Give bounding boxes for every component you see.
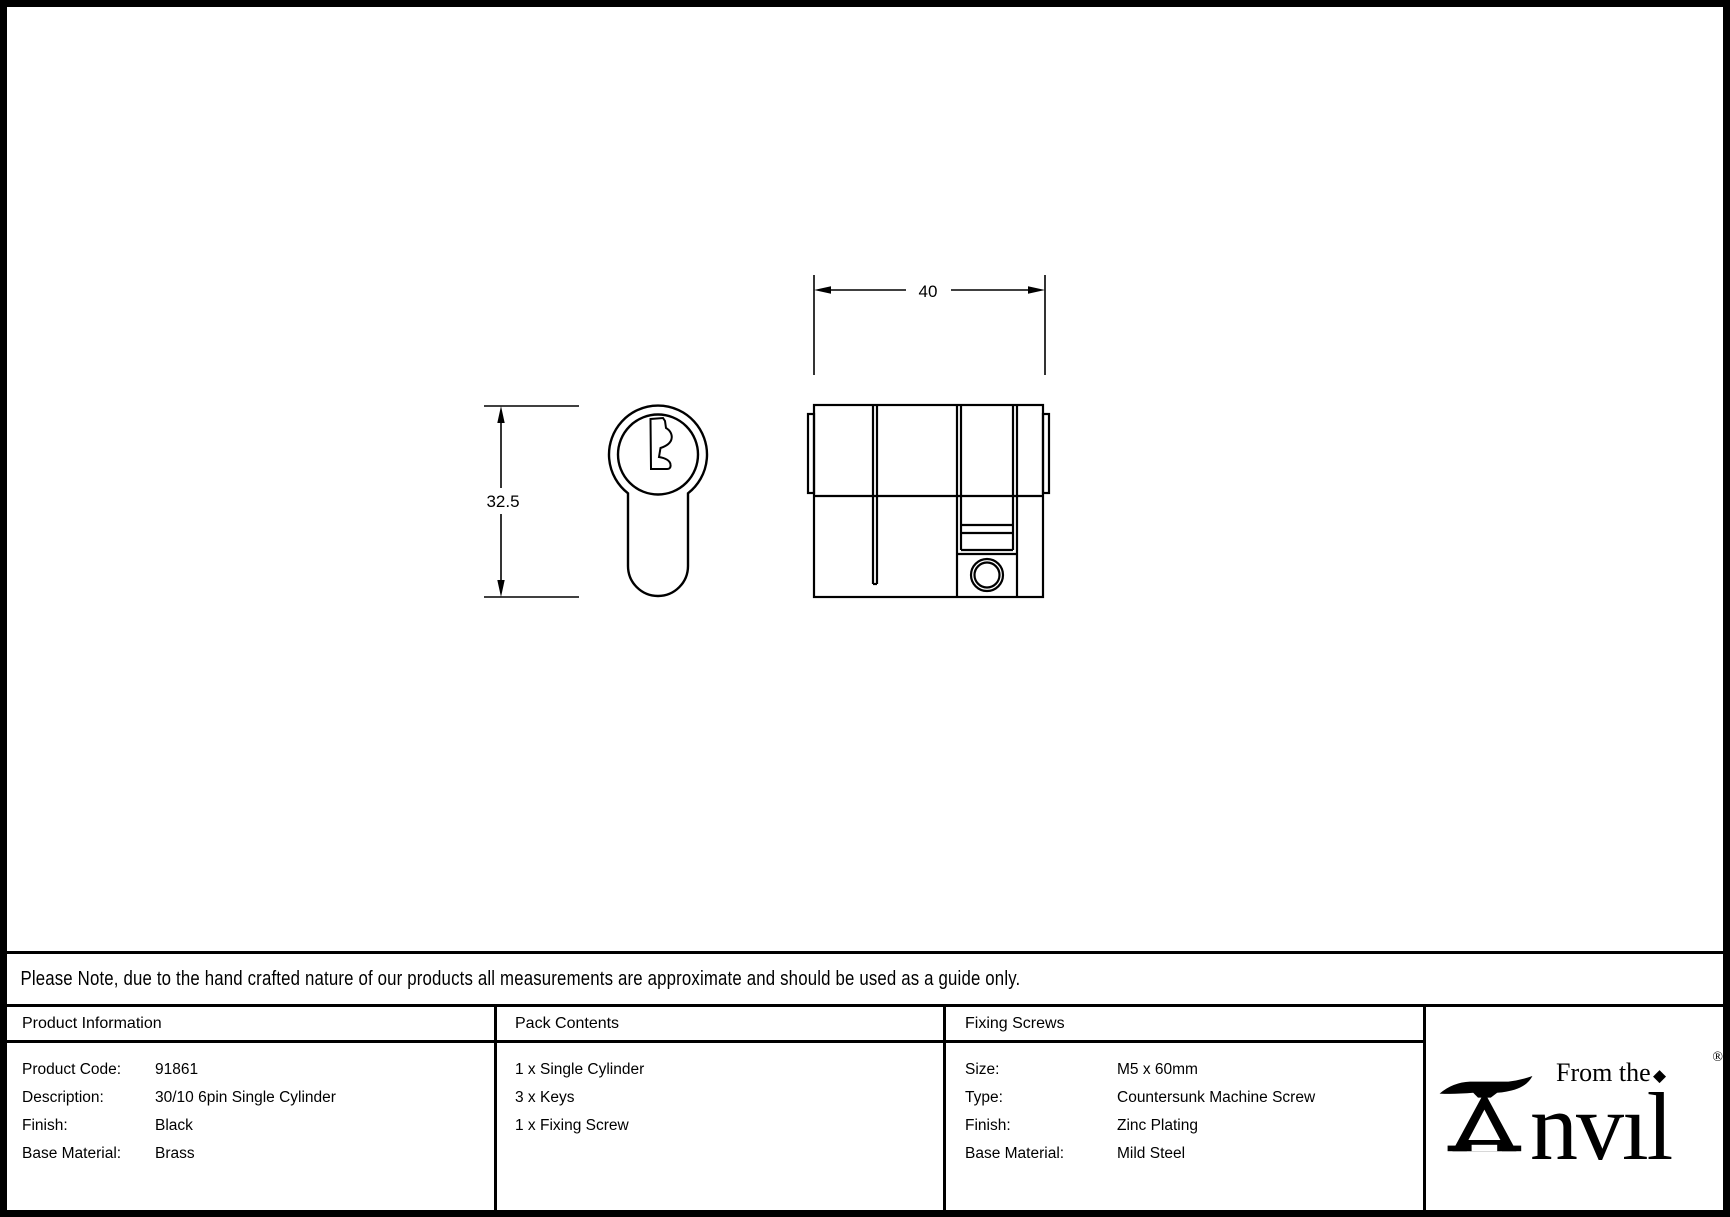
brand-name-text: nvıl — [1530, 1086, 1671, 1168]
finish-value: Black — [155, 1117, 193, 1134]
product-code-value: 91861 — [155, 1061, 198, 1078]
list-item: 3 x Keys — [515, 1084, 644, 1112]
dimension-width: 40 — [814, 275, 1045, 375]
product-information-header: Product Information — [22, 1007, 162, 1040]
list-item: 1 x Single Cylinder — [515, 1056, 644, 1084]
dimension-height: 32.5 — [484, 406, 579, 597]
product-info-table: Product Information Pack Contents Fixing… — [7, 1007, 1723, 1210]
fixing-screws-body: Size:M5 x 60mm Type:Countersunk Machine … — [965, 1056, 1315, 1168]
table-row: Finish:Zinc Plating — [965, 1112, 1315, 1140]
arrow-up-icon — [497, 406, 504, 423]
front-cap-lip — [808, 414, 814, 493]
description-value: 30/10 6pin Single Cylinder — [155, 1089, 336, 1106]
pack-contents-body: 1 x Single Cylinder 3 x Keys 1 x Fixing … — [515, 1056, 644, 1140]
product-information-body: Product Code:91861 Description:30/10 6pi… — [22, 1056, 336, 1168]
screw-finish-value: Zinc Plating — [1117, 1117, 1198, 1134]
table-row: Product Code:91861 — [22, 1056, 336, 1084]
rear-cap-lip — [1043, 414, 1049, 493]
column-divider — [494, 1007, 497, 1210]
list-item: 1 x Fixing Screw — [515, 1112, 644, 1140]
registered-mark: ® — [1712, 1050, 1723, 1066]
fixing-screw-hole — [971, 559, 1003, 591]
description-label: Description: — [22, 1084, 155, 1112]
column-divider — [943, 1007, 946, 1210]
screw-material-label: Base Material: — [965, 1140, 1117, 1168]
base-material-label: Base Material: — [22, 1140, 155, 1168]
cylinder-front-view — [609, 406, 707, 596]
table-row: Base Material:Brass — [22, 1140, 336, 1168]
anvil-icon — [1438, 1066, 1534, 1166]
screw-size-value: M5 x 60mm — [1117, 1061, 1198, 1078]
diamond-icon: ◆ — [1653, 1066, 1666, 1086]
brand-logo-cell: nvıl From the ◆ ® — [1426, 1007, 1723, 1210]
screw-type-label: Type: — [965, 1084, 1117, 1112]
header-divider-line — [7, 1040, 1423, 1043]
arrow-left-icon — [814, 286, 831, 293]
fixing-screws-header: Fixing Screws — [965, 1007, 1065, 1040]
technical-drawing: 32.5 40 — [7, 7, 1730, 951]
brand-prefix-text: From the — [1556, 1058, 1651, 1088]
product-code-label: Product Code: — [22, 1056, 155, 1084]
screw-material-value: Mild Steel — [1117, 1145, 1185, 1162]
measurement-note-row: Please Note, due to the hand crafted nat… — [7, 951, 1723, 1007]
from-the-anvil-logo: nvıl From the ◆ ® — [1426, 1034, 1723, 1184]
pack-contents-header: Pack Contents — [515, 1007, 619, 1040]
table-row: Finish:Black — [22, 1112, 336, 1140]
spec-sheet-page: 32.5 40 — [0, 0, 1730, 1217]
dimension-width-label: 40 — [919, 282, 938, 301]
dimension-height-label: 32.5 — [486, 492, 519, 511]
cylinder-side-view — [808, 405, 1049, 597]
screw-size-label: Size: — [965, 1056, 1117, 1084]
finish-label: Finish: — [22, 1112, 155, 1140]
screw-finish-label: Finish: — [965, 1112, 1117, 1140]
keyway-icon — [651, 418, 672, 469]
table-row: Base Material:Mild Steel — [965, 1140, 1315, 1168]
arrow-right-icon — [1028, 286, 1045, 293]
measurement-note-text: Please Note, due to the hand crafted nat… — [7, 968, 1020, 991]
arrow-down-icon — [497, 580, 504, 597]
table-row: Type:Countersunk Machine Screw — [965, 1084, 1315, 1112]
table-row: Description:30/10 6pin Single Cylinder — [22, 1084, 336, 1112]
screw-type-value: Countersunk Machine Screw — [1117, 1089, 1315, 1106]
cylinder-body-outline — [814, 405, 1043, 597]
table-row: Size:M5 x 60mm — [965, 1056, 1315, 1084]
base-material-value: Brass — [155, 1145, 195, 1162]
cylinder-plug-circle — [618, 415, 698, 495]
